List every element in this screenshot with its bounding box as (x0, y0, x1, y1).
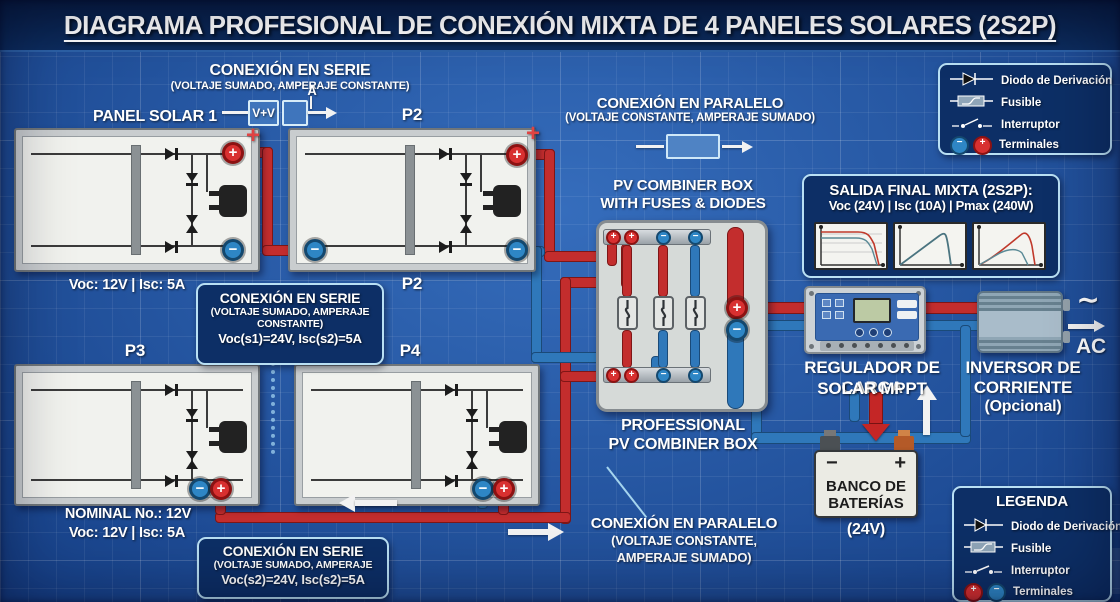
series-box1-sub1: (VOLTAJE SUMADO, AMPERAJE (198, 306, 382, 318)
diode-icon (964, 518, 1004, 537)
ac-arrow-shaft (1068, 324, 1094, 329)
indicator-knob (869, 328, 878, 337)
bypass-diode-icon (437, 147, 455, 161)
busbar-terminal-minus: − (656, 230, 671, 245)
legend-item-label: Interruptor (1001, 119, 1060, 131)
legend-item-label: Terminales (1013, 586, 1073, 598)
battery-voltage: (24V) (816, 521, 916, 539)
parallel-icon-arrow-shaft (722, 145, 742, 148)
controller-button (822, 299, 831, 307)
series-box2-value: Voc(s2)=24V, Isc(s2)=5A (199, 573, 387, 588)
series-top-sub: (VOLTAJE SUMADO, AMPERAJE CONSTANTE) (170, 80, 410, 93)
inverter-tab (1063, 331, 1070, 343)
terminal-plus-p3: + (210, 478, 232, 500)
fuse-holder (653, 296, 674, 330)
paralelo-top-heading: CONEXIÓN EN PARALELO (565, 95, 815, 112)
series-icon-arrow-shaft (308, 111, 326, 114)
terminal-plus-p1: + (222, 142, 244, 164)
plus-marker: + (246, 122, 260, 150)
series-info-box-2: CONEXIÓN EN SERIE (VOLTAJE SUMADO, AMPER… (197, 537, 389, 599)
ac-tilde-icon: ∼ (1068, 284, 1108, 316)
salida-final-box: SALIDA FINAL MIXTA (2S2P): Voc (24V) | I… (802, 174, 1060, 278)
series-icon-amp-label: A (304, 84, 320, 99)
combiner-output-plus: + (726, 297, 748, 319)
legend-item-label: Terminales (999, 139, 1059, 151)
blueprint-diagram: DIAGRAMA PROFESIONAL DE CONEXIÓN MIXTA D… (0, 0, 1120, 602)
junction-box (493, 185, 521, 217)
flow-arrow-left-shaft (355, 500, 397, 506)
screw-icon (809, 344, 814, 349)
busbar-terminal-plus: + (606, 368, 621, 383)
fuse-icon (964, 540, 1004, 559)
panel2-label-below: P2 (372, 274, 452, 294)
plus-marker: + (526, 120, 540, 148)
terminals-icon: − + (950, 136, 992, 155)
terminal-minus-p2-left: − (304, 239, 326, 261)
battery-plus-label: + (894, 452, 906, 475)
series-box2-heading: CONEXIÓN EN SERIE (199, 543, 387, 559)
terminal-strip (820, 341, 914, 351)
screw-icon (916, 344, 921, 349)
legend-bottom: LEGENDA Diodo de Derivación Fusible Inte… (952, 486, 1112, 602)
terminal-minus-p1: − (222, 239, 244, 261)
bowtie-diode-icon (459, 215, 473, 233)
wire-red-p1-down (262, 147, 273, 256)
iv-current-curve-chart (893, 222, 967, 270)
series-box1-value: Voc(s1)=24V, Isc(s2)=5A (198, 332, 382, 347)
panel-face (296, 136, 528, 264)
bypass-diode-icon (163, 240, 181, 254)
bypass-diode-icon (443, 474, 461, 488)
bypass-diode-icon (163, 474, 181, 488)
legend-item-label: Diodo de Derivación (1001, 75, 1112, 87)
junction-box (219, 421, 247, 453)
terminal-plus-icon: + (964, 583, 983, 602)
wire-red-string1-to-combiner (544, 251, 602, 262)
series-icon-arrow (326, 107, 337, 119)
bypass-diode-icon (163, 383, 181, 397)
series-icon-label: V+V (250, 102, 277, 125)
controller-face (815, 293, 919, 341)
panel2-label: P2 (372, 105, 452, 125)
junction-box (499, 421, 527, 453)
battery-minus-label: − (826, 452, 838, 475)
diode-down-icon (465, 407, 479, 423)
flow-arrow-left-icon (339, 494, 355, 512)
bowtie-diode-icon (185, 215, 199, 233)
charge-arrow-down-icon (862, 424, 890, 441)
series-info-box-1: CONEXIÓN EN SERIE (VOLTAJE SUMADO, AMPER… (196, 283, 384, 365)
wire-red-string2-riser (560, 277, 571, 524)
combiner-label-bottom2: PV COMBINER BOX (598, 436, 768, 454)
battery-label-line1: BANCO DE (816, 478, 916, 495)
bypass-diode-icon (437, 240, 455, 254)
combiner-col2-top (658, 245, 668, 297)
title-bar: DIAGRAMA PROFESIONAL DE CONEXIÓN MIXTA D… (0, 0, 1120, 52)
combiner-col3-top (690, 245, 700, 297)
inverter-fins (979, 337, 1061, 353)
combiner-output-minus: − (726, 319, 748, 341)
flow-arrow-right-shaft (508, 529, 548, 535)
diode-down-icon (185, 171, 199, 187)
legend-top: Diodo de Derivación Fusible Interruptor … (938, 63, 1112, 155)
power-curve-chart (972, 222, 1046, 270)
parallel-icon-lead (636, 145, 664, 148)
parallel-icon-arrow (742, 141, 753, 153)
series-icon-box2 (282, 100, 308, 126)
terminal-plus-p4: + (493, 478, 515, 500)
diode-down-icon (185, 407, 199, 423)
wire-red-bottom-run (215, 512, 571, 523)
busbar-terminal-plus: + (624, 368, 639, 383)
regulador-label-line2: SOLAR MPPT (780, 379, 964, 399)
paralelo-bottom-sub1: (VOLTAJE CONSTANTE, (584, 534, 784, 549)
salida-specs: Voc (24V) | Isc (10A) | Pmax (240W) (804, 199, 1058, 214)
switch-icon (964, 562, 1004, 581)
controller-button (822, 311, 831, 319)
charge-controller (804, 286, 926, 354)
discharge-arrow-shaft (923, 399, 930, 435)
terminal-minus-icon: − (987, 583, 1006, 602)
paralelo-top-sub: (VOLTAJE CONSTANTE, AMPERAJE SUMADO) (560, 112, 820, 125)
legend-item-label: Fusible (1011, 543, 1051, 555)
legend-item-label: Diodo de Derivación (1011, 521, 1120, 533)
usb-port-icon (897, 300, 917, 308)
indicator-knob (855, 328, 864, 337)
wire-blue-bottom-run (751, 432, 971, 444)
bypass-diode-icon (443, 383, 461, 397)
dotted-separator (271, 362, 275, 454)
combiner-col2-bottom (658, 330, 668, 368)
paralelo-bottom-heading: CONEXIÓN EN PARALELO (584, 515, 784, 532)
combiner-label-top1: PV COMBINER BOX (598, 177, 768, 194)
controller-button (835, 299, 844, 307)
inverter-fins (979, 293, 1061, 311)
terminal-plus-p2: + (506, 144, 528, 166)
inverter-body (979, 311, 1061, 337)
bypass-diode-icon (163, 147, 181, 161)
bowtie-diode-icon (465, 451, 479, 469)
inverter (977, 291, 1063, 353)
terminal-minus-p3: − (189, 478, 211, 500)
bowtie-diode-icon (185, 451, 199, 469)
page-title: DIAGRAMA PROFESIONAL DE CONEXIÓN MIXTA D… (64, 10, 1056, 41)
iv-voltage-curve-chart (814, 222, 888, 270)
diode-icon (950, 72, 994, 91)
busbar-terminal-minus: − (656, 368, 671, 383)
legend-item-label: Interruptor (1011, 565, 1070, 577)
series-box1-sub2: CONSTANTE) (198, 318, 382, 330)
terminals-icon: + − (964, 583, 1006, 602)
fuse-holder (617, 296, 638, 330)
callout-line (606, 466, 647, 518)
lcd-screen (853, 298, 891, 323)
series-box1-heading: CONEXIÓN EN SERIE (198, 290, 382, 306)
paralelo-bottom-sub2: AMPERAJE SUMADO) (584, 551, 784, 566)
flow-arrow-right-icon (548, 523, 564, 541)
inversor-label-line3: (Opcional) (958, 398, 1088, 416)
panel1-label: PANEL SOLAR 1 (65, 108, 245, 126)
combiner-col1-top (622, 245, 632, 297)
series-top-heading: CONEXIÓN EN SERIE (180, 62, 400, 80)
combiner-label-bottom1: PROFESSIONAL (598, 417, 768, 435)
panel3-specs: Voc: 12V | Isc: 5A (42, 525, 212, 542)
panel3-label: P3 (95, 341, 175, 361)
legend-item-label: Fusible (1001, 97, 1041, 109)
controller-button (835, 311, 844, 319)
terminal-minus-p4: − (472, 478, 494, 500)
wire-red-p2-down (544, 149, 555, 261)
terminal-minus-icon: − (950, 136, 969, 155)
switch-icon (950, 116, 994, 135)
legend-title: LEGENDA (954, 493, 1110, 510)
fuse-holder (685, 296, 706, 330)
terminal-plus-icon: + (973, 136, 992, 155)
usb-port-icon (897, 311, 917, 319)
busbar-terminal-minus: − (688, 230, 703, 245)
diode-down-icon (459, 171, 473, 187)
inversor-label-line2: CORRIENTE (958, 378, 1088, 398)
fuse-icon (950, 94, 994, 113)
screw-icon (809, 291, 814, 296)
ac-label: AC (1070, 335, 1112, 359)
junction-box (219, 185, 247, 217)
busbar-terminal-plus: + (624, 230, 639, 245)
combiner-col1-bottom (622, 330, 632, 368)
series-box2-sub1: (VOLTAJE SUMADO, AMPERAJE (199, 559, 387, 571)
panel3-nominal: NOMINAL No.: 12V (38, 506, 218, 523)
panel1-specs: Voc: 12V | Isc: 5A (42, 277, 212, 294)
series-icon-box1: V+V (248, 100, 279, 126)
panel-face (22, 136, 252, 264)
indicator-knob (883, 328, 892, 337)
combiner-col3-bottom (690, 330, 700, 368)
ac-arrow-icon (1094, 320, 1105, 332)
terminal-minus-p2-right: − (506, 239, 528, 261)
combiner-label-top2: WITH FUSES & DIODES (598, 195, 768, 212)
inversor-label-line1: INVERSOR DE (958, 358, 1088, 378)
battery-bank: − + BANCO DE BATERÍAS (814, 450, 918, 518)
busbar-terminal-minus: − (688, 368, 703, 383)
busbar-terminal-plus: + (606, 230, 621, 245)
battery-label-line2: BATERÍAS (816, 495, 916, 512)
salida-title: SALIDA FINAL MIXTA (2S2P): (804, 182, 1058, 199)
parallel-icon-box (666, 134, 720, 159)
